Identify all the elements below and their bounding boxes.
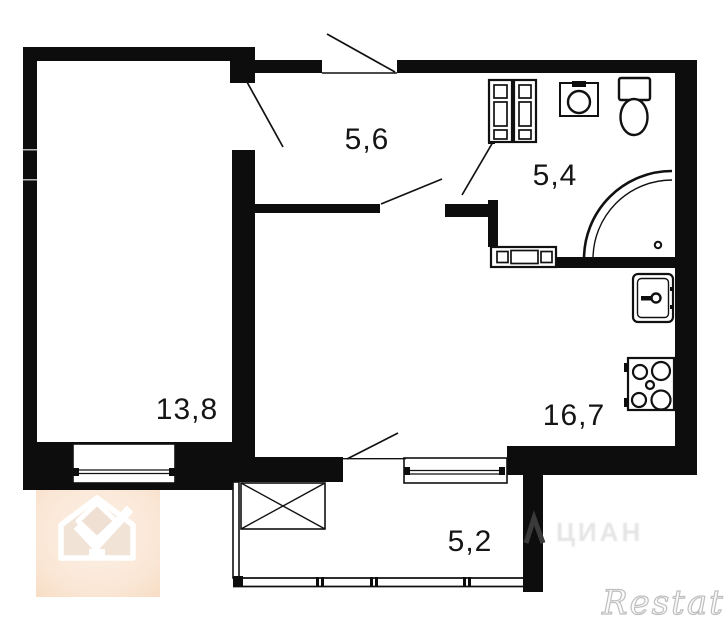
room-label-hallway: 5,6 bbox=[345, 125, 390, 155]
window-room bbox=[73, 444, 175, 483]
wall-living-balcony bbox=[230, 457, 343, 482]
room-door-swing bbox=[247, 82, 283, 147]
toilet-icon bbox=[619, 78, 650, 135]
doors bbox=[247, 34, 495, 459]
wall-bathroom-bottom bbox=[556, 257, 675, 268]
agency-logo-watermark bbox=[36, 483, 160, 597]
wall-left bbox=[23, 47, 37, 490]
kitchen-sink-icon bbox=[633, 274, 674, 322]
room-label-balcony: 5,2 bbox=[448, 527, 493, 557]
balcony-crossed-box bbox=[241, 483, 325, 529]
wall-top-left bbox=[23, 47, 255, 61]
bathroom-sink-icon bbox=[560, 81, 598, 116]
room-label-room: 13,8 bbox=[156, 395, 218, 425]
window-balcony bbox=[404, 458, 507, 483]
stove-icon bbox=[624, 358, 674, 410]
room-label-bathroom: 5,4 bbox=[533, 161, 578, 191]
brand-watermark: Restate bbox=[602, 583, 725, 623]
wall-bottom-right bbox=[507, 446, 695, 475]
logo-door-notch bbox=[89, 549, 105, 558]
bathroom-fixtures bbox=[489, 78, 672, 267]
kitchen-fixtures bbox=[624, 274, 674, 410]
wall-hallway-living bbox=[255, 204, 380, 213]
wall-entry-corner-block bbox=[230, 47, 255, 83]
wall-bathroom-vertical bbox=[488, 200, 498, 247]
wall-top-hallway bbox=[255, 60, 322, 73]
living-door-swing bbox=[381, 179, 442, 204]
wall-joint-line bbox=[23, 179, 37, 181]
entrance-door-swing bbox=[327, 34, 395, 72]
floor-plan-page: 5,6 5,4 13,8 16,7 5,2 ЦИАН Restate bbox=[0, 0, 725, 623]
wall-right bbox=[675, 60, 697, 475]
room-label-kitchen-living: 16,7 bbox=[543, 401, 605, 431]
center-watermark: ЦИАН bbox=[556, 517, 643, 548]
washing-machine-icon bbox=[491, 247, 556, 267]
wall-top-right bbox=[397, 60, 697, 73]
wardrobe-cabinet-icon bbox=[489, 80, 536, 142]
bathroom-door-swing bbox=[462, 142, 493, 195]
balcony-door-swing bbox=[347, 433, 398, 459]
wall-joint-line bbox=[23, 149, 37, 151]
balcony-left-wall bbox=[233, 482, 239, 578]
corner-shower-icon bbox=[584, 171, 672, 259]
wall-room-divider bbox=[232, 150, 255, 450]
